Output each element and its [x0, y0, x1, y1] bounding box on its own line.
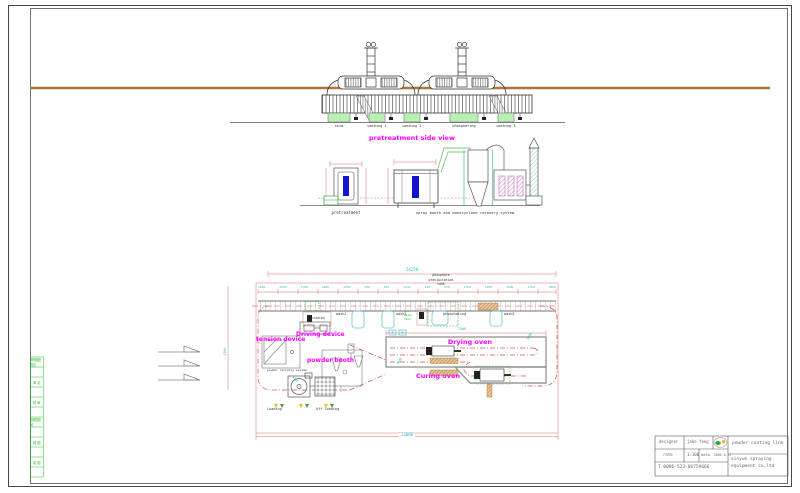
strip-row-2: 审 定	[30, 377, 43, 387]
dim-side: 1500	[224, 348, 227, 356]
tb-date-value: 2005.6.17	[714, 454, 731, 457]
label-offloading: Off-loading	[316, 408, 339, 412]
station-wash1: wash1	[336, 313, 347, 317]
exhaust-stack-1	[327, 42, 415, 95]
station-phosphating: phosphating	[443, 313, 466, 317]
side-view-drawing	[30, 42, 770, 122]
label-powder-recovery: powder recovery system	[267, 369, 307, 372]
strip-row-1: 修改图纸签记	[30, 357, 43, 367]
station-skim: skim	[316, 317, 324, 321]
tb-designer-label: designer	[659, 440, 678, 444]
tb-designer-name: jake feng	[687, 440, 709, 444]
recovery-filter	[315, 377, 335, 396]
plan-view-drawing	[158, 271, 558, 440]
process-tanks	[328, 113, 524, 122]
equipment-section-views	[300, 138, 542, 208]
label-loading: Loading	[267, 408, 282, 412]
tb-company-1: xinyue spraying	[731, 458, 772, 463]
spray-booth-section	[388, 138, 542, 208]
label-drying-oven: Drying oven	[448, 339, 492, 346]
phosphate-note-3: tank	[437, 283, 445, 286]
tb-company-2: equipment co,ltd	[731, 465, 774, 470]
dim-total: 24250	[406, 268, 418, 272]
strip-row-4: 旧底图总号	[30, 417, 43, 427]
station-wash3: wash3	[504, 313, 515, 317]
tb-date-label: date	[701, 453, 710, 457]
dim-oven: 7500	[456, 328, 468, 332]
tank-label-phosphating: phosphating	[452, 125, 475, 129]
strip-row-5: 描 图	[30, 437, 43, 447]
station-wash2: wash2	[396, 313, 407, 317]
tank-label-skim: skim	[335, 125, 343, 129]
tb-rate-label: rate	[663, 453, 673, 457]
drawing-sheet: skim washing 1 washing 2 phosphating was…	[0, 0, 800, 493]
tank-label-washing3: washing 3	[497, 125, 516, 129]
tb-rate-value: 1:100	[687, 453, 699, 457]
tank-label-washing1: washing 1	[368, 125, 387, 129]
pretreatment-section	[324, 161, 366, 205]
side-view-title: pretreatment side view	[369, 135, 455, 142]
exhaust-stack-2	[418, 42, 506, 95]
label-powder-booth: powder booth	[307, 358, 354, 364]
dim-row: 150020001700 20001450500 9501443448 9501…	[258, 286, 556, 289]
tank-label-washing2: washing 2	[403, 125, 422, 129]
pretreatment-label: pretreatment	[332, 211, 361, 215]
ovens	[386, 337, 546, 397]
label-curing-oven: Curing oven	[416, 373, 460, 380]
tb-project: powder coating line	[732, 442, 783, 447]
drawing-canvas	[0, 0, 800, 493]
fluid-note-3: tank	[404, 318, 411, 321]
spray-booth-label: spray booth and monocyclone recovery sys…	[416, 211, 514, 215]
label-tension-device: tension device	[256, 337, 305, 343]
tb-phone: T:0086-523-86759666	[658, 466, 709, 471]
dim-bottom: 23000	[399, 433, 415, 437]
strip-row-3: 校 审	[30, 397, 43, 407]
strip-row-6: 制 图	[30, 457, 43, 467]
flow-arrows	[158, 346, 200, 380]
